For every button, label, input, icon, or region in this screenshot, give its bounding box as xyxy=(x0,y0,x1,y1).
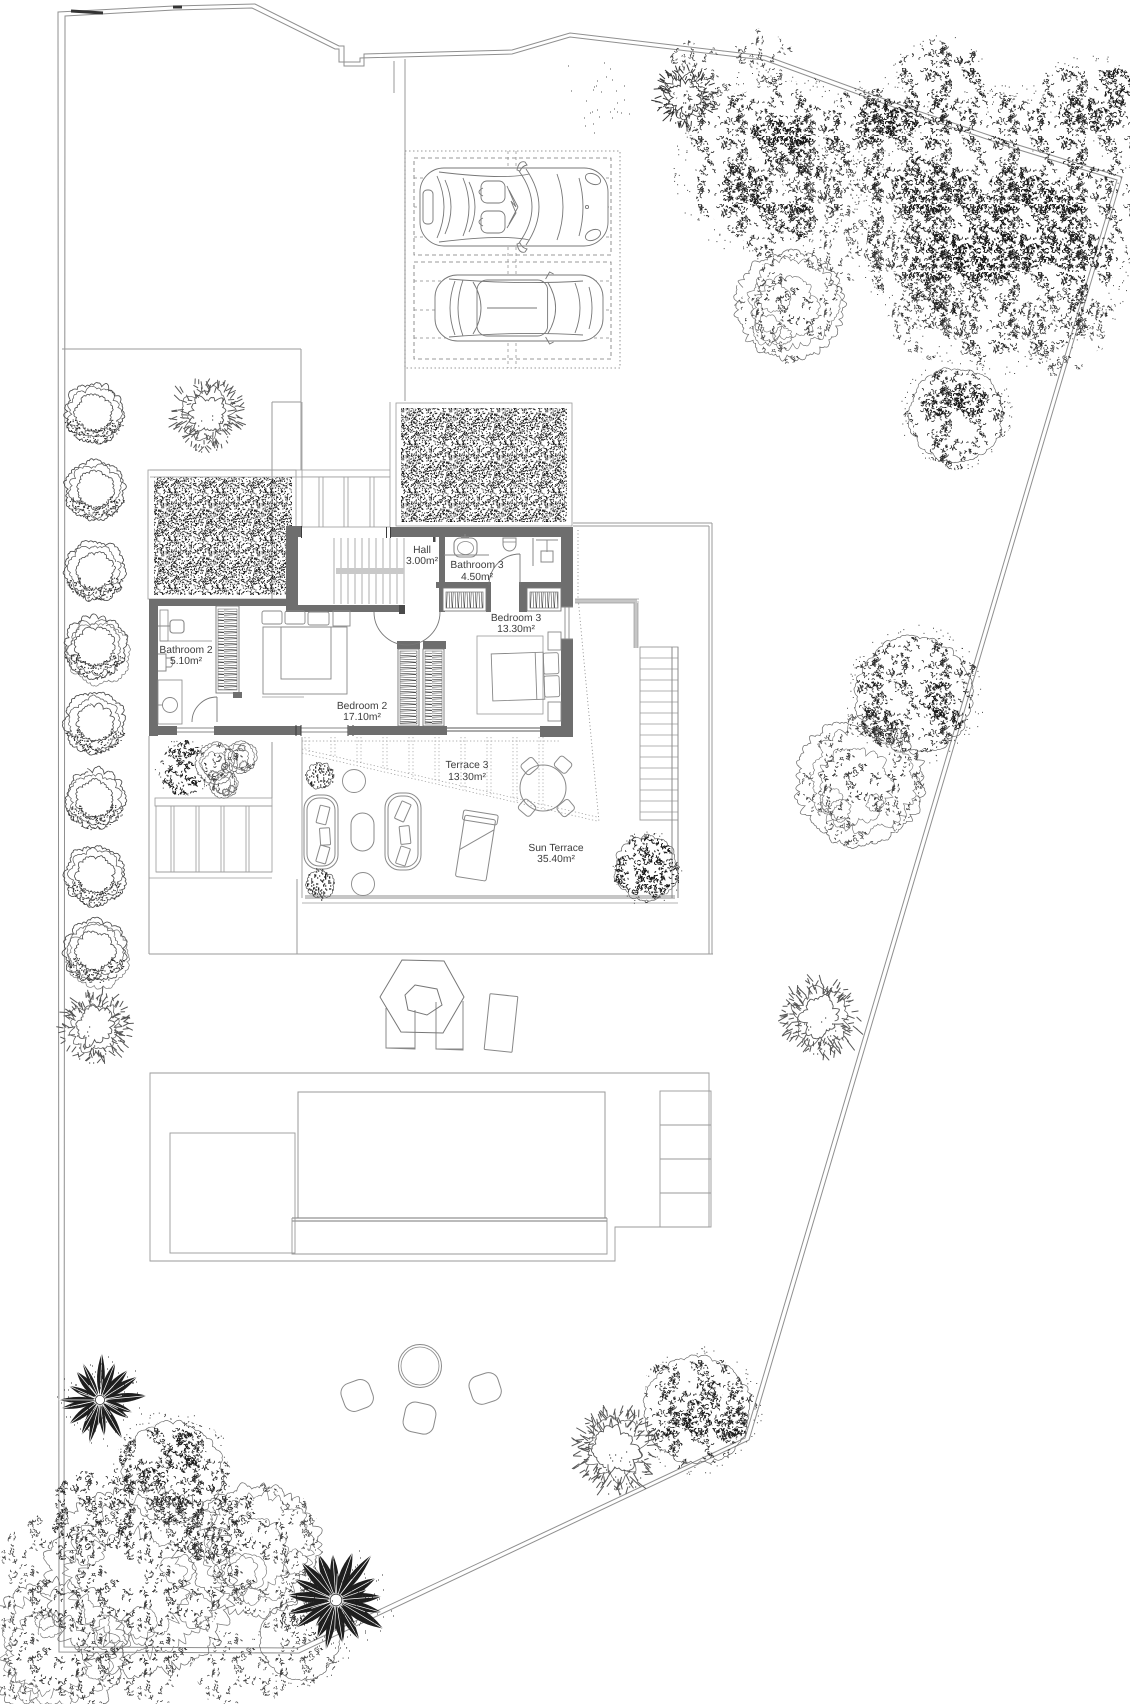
svg-text:Bathroom 3: Bathroom 3 xyxy=(450,560,504,571)
svg-text:13.30m²: 13.30m² xyxy=(448,772,486,783)
svg-text:Sun Terrace: Sun Terrace xyxy=(528,843,584,854)
svg-text:Terrace 3: Terrace 3 xyxy=(446,760,489,771)
svg-text:Hall: Hall xyxy=(413,545,431,556)
svg-text:Bedroom 2: Bedroom 2 xyxy=(337,701,388,712)
svg-text:17.10m²: 17.10m² xyxy=(343,712,381,723)
svg-text:3.00m²: 3.00m² xyxy=(406,556,439,567)
svg-text:5.10m²: 5.10m² xyxy=(170,656,203,667)
svg-text:13.30m²: 13.30m² xyxy=(497,624,535,635)
svg-text:Bedroom 3: Bedroom 3 xyxy=(491,613,542,624)
svg-text:Bathroom 2: Bathroom 2 xyxy=(159,645,213,656)
svg-text:35.40m²: 35.40m² xyxy=(537,854,575,865)
svg-text:4.50m²: 4.50m² xyxy=(461,572,494,583)
